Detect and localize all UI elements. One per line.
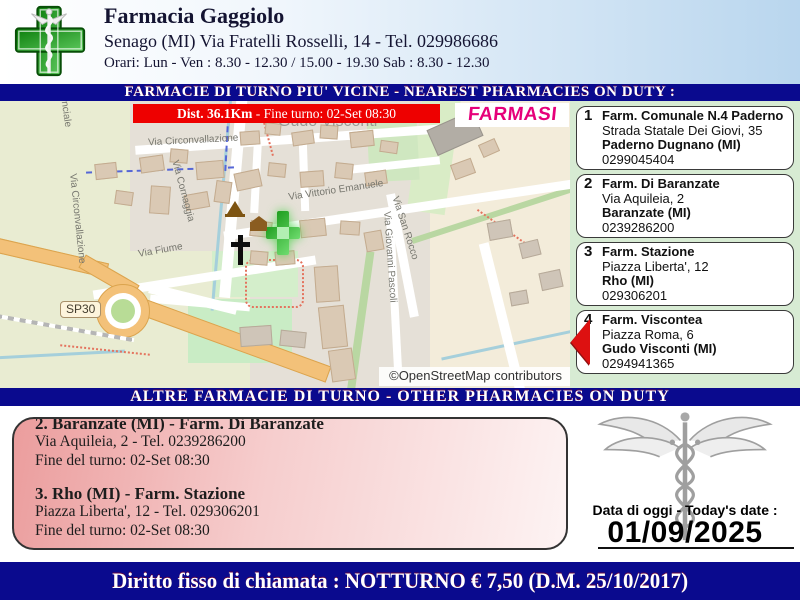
- other-pharmacy-entry: 2. Baranzate (MI) - Farm. Di Baranzate V…: [35, 417, 556, 470]
- header: Farmacia Gaggiolo Senago (MI) Via Fratel…: [0, 0, 800, 84]
- date-panel: Data di oggi - Today's date : 01/09/2025: [570, 406, 800, 562]
- date-underline: [598, 547, 794, 549]
- call-fee-notice: Diritto fisso di chiamata : NOTTURNO € 7…: [0, 568, 800, 594]
- selected-arrow-icon: [571, 319, 590, 365]
- duty-card-4[interactable]: 4 Farm. Viscontea Piazza Roma, 6 Gudo Vi…: [576, 310, 794, 374]
- duty-card-number: 3: [584, 245, 592, 260]
- pharmacy-cross-logo-icon: [12, 3, 90, 81]
- pharmacy-street: Via Aquileia, 2: [602, 192, 789, 207]
- pharmacy-name: Farm. Comunale N.4 Paderno: [602, 109, 789, 124]
- bottom-section: 2. Baranzate (MI) - Farm. Di Baranzate V…: [0, 406, 800, 562]
- nearest-pharmacies-banner: FARMACIE DI TURNO PIU' VICINE - NEAREST …: [0, 84, 800, 101]
- osm-attribution[interactable]: ©OpenStreetMap contributors: [379, 367, 570, 386]
- other-pharmacies-box: 2. Baranzate (MI) - Farm. Di Baranzate V…: [12, 417, 568, 550]
- pharmacy-name: Farm. Viscontea: [602, 313, 789, 328]
- church-cross-icon: [228, 235, 252, 267]
- other-pharmacy-entry: 3. Rho (MI) - Farm. Stazione Piazza Libe…: [35, 484, 556, 540]
- other-pharmacy-address: Piazza Liberta', 12 - Tel. 029306201: [35, 503, 556, 522]
- road-badge-sp30: SP30: [60, 301, 101, 318]
- pharmacy-city: Gudo Visconti (MI): [602, 342, 789, 357]
- duty-card-number: 1: [584, 109, 592, 124]
- pharmacy-hours: Orari: Lun - Ven : 8.30 - 12.30 / 15.00 …: [104, 53, 498, 74]
- monument-bell-icon: [225, 201, 245, 219]
- other-pharmacy-address: Via Aquileia, 2 - Tel. 0239286200: [35, 433, 556, 452]
- pharmacy-street: Piazza Liberta', 12: [602, 260, 789, 275]
- duty-pharmacies-sidebar: 1 Farm. Comunale N.4 Paderno Strada Stat…: [570, 101, 800, 388]
- pharmacy-phone: 0239286200: [602, 221, 789, 236]
- today-date: 01/09/2025: [570, 516, 800, 550]
- footer-banner: Diritto fisso di chiamata : NOTTURNO € 7…: [0, 562, 800, 600]
- distance-value: Dist. 36.1Km: [177, 106, 252, 121]
- pharmacy-name: Farm. Stazione: [602, 245, 789, 260]
- pharmacy-name: Farm. Di Baranzate: [602, 177, 789, 192]
- other-pharmacy-title: 2. Baranzate (MI) - Farm. Di Baranzate: [35, 417, 556, 433]
- other-pharmacy-shift: Fine del turno: 02-Set 08:30: [35, 522, 556, 541]
- pharmacy-phone: 029306201: [602, 289, 789, 304]
- pharmacy-address: Senago (MI) Via Fratelli Rosselli, 14 - …: [104, 29, 498, 53]
- shift-end: - Fine turno: 02-Set 08:30: [252, 106, 396, 121]
- pharmacy-city: Baranzate (MI): [602, 206, 789, 221]
- pharmacy-phone: 0299045404: [602, 153, 789, 168]
- farmasi-logo: FARMASI: [455, 103, 569, 127]
- museum-icon: [250, 216, 268, 232]
- page-title: Farmacia Gaggiolo: [104, 3, 498, 29]
- duty-card-1[interactable]: 1 Farm. Comunale N.4 Paderno Strada Stat…: [576, 106, 794, 170]
- pharmacy-street: Strada Statale Dei Giovi, 35: [602, 124, 789, 139]
- roundabout: [96, 284, 150, 338]
- pharmacy-street: Piazza Roma, 6: [602, 328, 789, 343]
- pharmacy-duty-page: Farmacia Gaggiolo Senago (MI) Via Fratel…: [0, 0, 800, 600]
- pharmacy-city: Rho (MI): [602, 274, 789, 289]
- pharmacy-marker-green-cross-icon: [266, 211, 300, 255]
- other-pharmacies-banner: ALTRE FARMACIE DI TURNO - OTHER PHARMACI…: [0, 388, 800, 406]
- header-text: Farmacia Gaggiolo Senago (MI) Via Fratel…: [104, 3, 498, 74]
- duty-card-3[interactable]: 3 Farm. Stazione Piazza Liberta', 12 Rho…: [576, 242, 794, 306]
- distance-banner: Dist. 36.1Km - Fine turno: 02-Set 08:30: [133, 104, 440, 123]
- pharmacy-city: Paderno Dugnano (MI): [602, 138, 789, 153]
- map: Gudo Visconti Strada Provinciale Via Cir…: [0, 101, 570, 388]
- call-fee-notice-repeat: Diritto fisso di chiamata : NOTTURNO € 7…: [0, 596, 800, 600]
- pharmacy-phone: 0294941365: [602, 357, 789, 372]
- other-pharmacy-title: 3. Rho (MI) - Farm. Stazione: [35, 484, 556, 503]
- other-pharmacy-shift: Fine del turno: 02-Set 08:30: [35, 452, 556, 471]
- duty-card-2[interactable]: 2 Farm. Di Baranzate Via Aquileia, 2 Bar…: [576, 174, 794, 238]
- duty-card-number: 2: [584, 177, 592, 192]
